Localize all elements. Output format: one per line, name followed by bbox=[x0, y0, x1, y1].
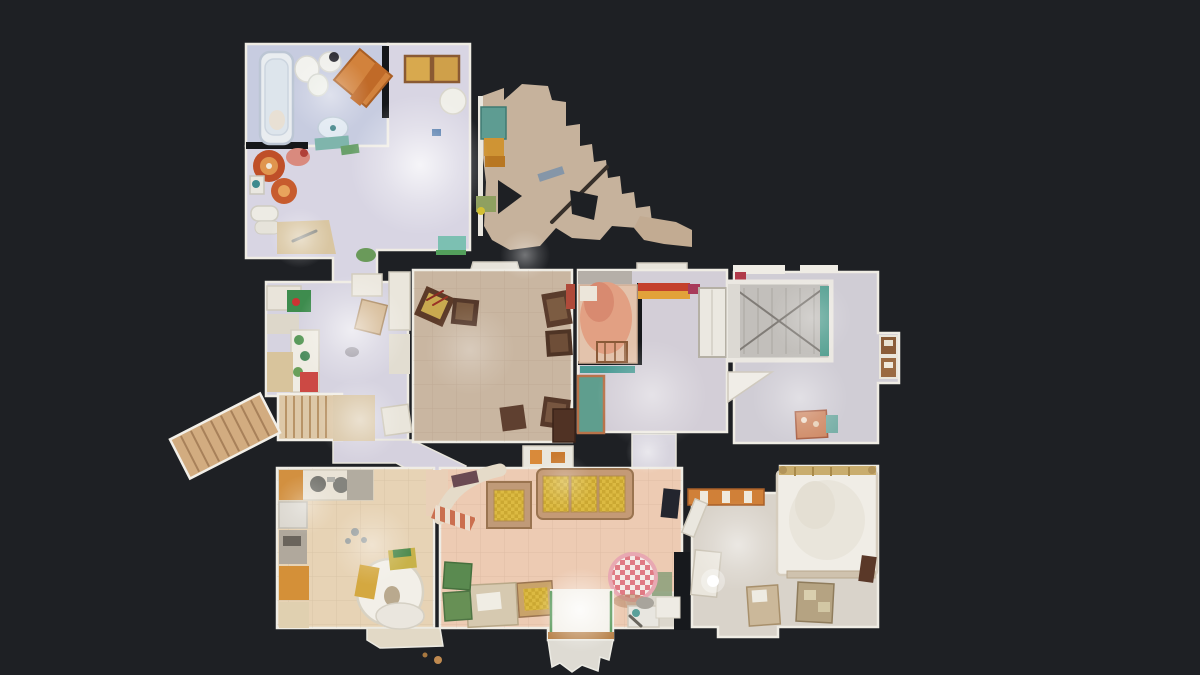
bed3-texture-2 bbox=[795, 481, 835, 529]
scan-light-living-top bbox=[537, 454, 593, 510]
scan-speck-1 bbox=[434, 656, 442, 664]
floorplan-root bbox=[170, 44, 899, 672]
armchair-cushion bbox=[494, 490, 524, 521]
basin-spot-1 bbox=[530, 450, 542, 464]
dining-chair-6 bbox=[499, 404, 526, 431]
dining-chair-3-seat bbox=[546, 297, 568, 322]
pantry-pack-red bbox=[300, 372, 318, 392]
flowers-red bbox=[300, 149, 308, 157]
plant-green bbox=[356, 248, 376, 262]
kitchen-stove bbox=[347, 470, 373, 500]
cab-teal-dot bbox=[632, 609, 640, 617]
pantry-box-tan bbox=[267, 352, 293, 392]
kitchen-appliance-dark bbox=[283, 536, 301, 546]
shelf-teal bbox=[438, 236, 466, 250]
bay-inner-1 bbox=[884, 340, 893, 346]
bathtub-towel bbox=[269, 110, 285, 130]
bedroom2-cap-b bbox=[800, 265, 838, 273]
scan-viewer-stage[interactable] bbox=[0, 0, 1200, 675]
fragment-terrace-right[interactable] bbox=[634, 216, 692, 247]
tv-dark bbox=[661, 488, 681, 519]
chair-green-2 bbox=[443, 591, 472, 621]
scan-light-kitchen-top bbox=[275, 475, 335, 535]
scan-light-entry bbox=[538, 568, 622, 652]
moss-dot bbox=[477, 207, 485, 215]
strip-green bbox=[436, 250, 466, 255]
kitchen-cab-lower bbox=[279, 602, 309, 628]
scan-light-bed3 bbox=[693, 500, 783, 590]
stairs-lower-flight[interactable] bbox=[170, 393, 280, 478]
scan-light-dining bbox=[425, 305, 515, 395]
wreath-1-core bbox=[266, 163, 272, 169]
scan-light-kitchen bbox=[332, 505, 412, 585]
chair-gold-1 bbox=[405, 56, 431, 82]
bed3-post-left bbox=[779, 466, 787, 474]
red-hanging bbox=[566, 284, 575, 309]
chair-green-1 bbox=[443, 562, 472, 590]
bed1-pillow bbox=[580, 286, 597, 301]
scan-speck-2 bbox=[423, 653, 428, 658]
pantry-pack-dot bbox=[292, 298, 300, 306]
fragment-terrace-scan[interactable] bbox=[482, 84, 652, 250]
scan-light-corridor-2 bbox=[318, 378, 402, 462]
west-frag-white bbox=[656, 597, 680, 618]
desk-paper bbox=[476, 592, 502, 611]
kitchen-appliance bbox=[279, 530, 307, 564]
kitchen-sink-2 bbox=[333, 477, 349, 493]
scan-light-bathroom bbox=[290, 55, 370, 135]
bedroom3-chair-2-dot-1 bbox=[804, 590, 816, 600]
kitchen-counter-orange-2 bbox=[279, 566, 309, 600]
sofa-cushion-3 bbox=[599, 476, 625, 512]
scan-light-hall bbox=[350, 95, 490, 235]
bed3-post-right bbox=[868, 466, 876, 474]
scan-light-landing-low bbox=[270, 208, 330, 268]
fixture-white-1 bbox=[251, 206, 278, 221]
floorplan-svg[interactable] bbox=[0, 0, 1200, 675]
bedroom3-chair-2-dot-2 bbox=[818, 602, 830, 612]
bed3-headboard bbox=[779, 466, 876, 475]
scan-light-bed2-top bbox=[772, 278, 852, 358]
scan-light-corridor-1 bbox=[297, 275, 407, 385]
box-teal-dot bbox=[252, 180, 260, 188]
wreath-2-inner bbox=[278, 185, 290, 197]
kitchen-faucet bbox=[327, 477, 335, 482]
scan-light-bed2 bbox=[752, 350, 848, 446]
porch-kitchen[interactable] bbox=[367, 628, 443, 648]
chair-teal-back bbox=[481, 107, 506, 139]
side-table-dark bbox=[553, 409, 575, 442]
bay-inner-2 bbox=[884, 362, 893, 368]
west-frag-gray bbox=[636, 597, 654, 609]
valance-red bbox=[638, 283, 690, 291]
cot-left-white bbox=[728, 284, 740, 358]
chair-gold-2 bbox=[433, 56, 459, 82]
scan-light-vestibule bbox=[500, 230, 550, 280]
scan-light-corridor-mid bbox=[626, 430, 670, 474]
dining-chair-4-seat bbox=[549, 333, 568, 352]
kitchen-chair-white bbox=[376, 603, 424, 629]
bedroom3-chair-1-white bbox=[752, 589, 768, 602]
